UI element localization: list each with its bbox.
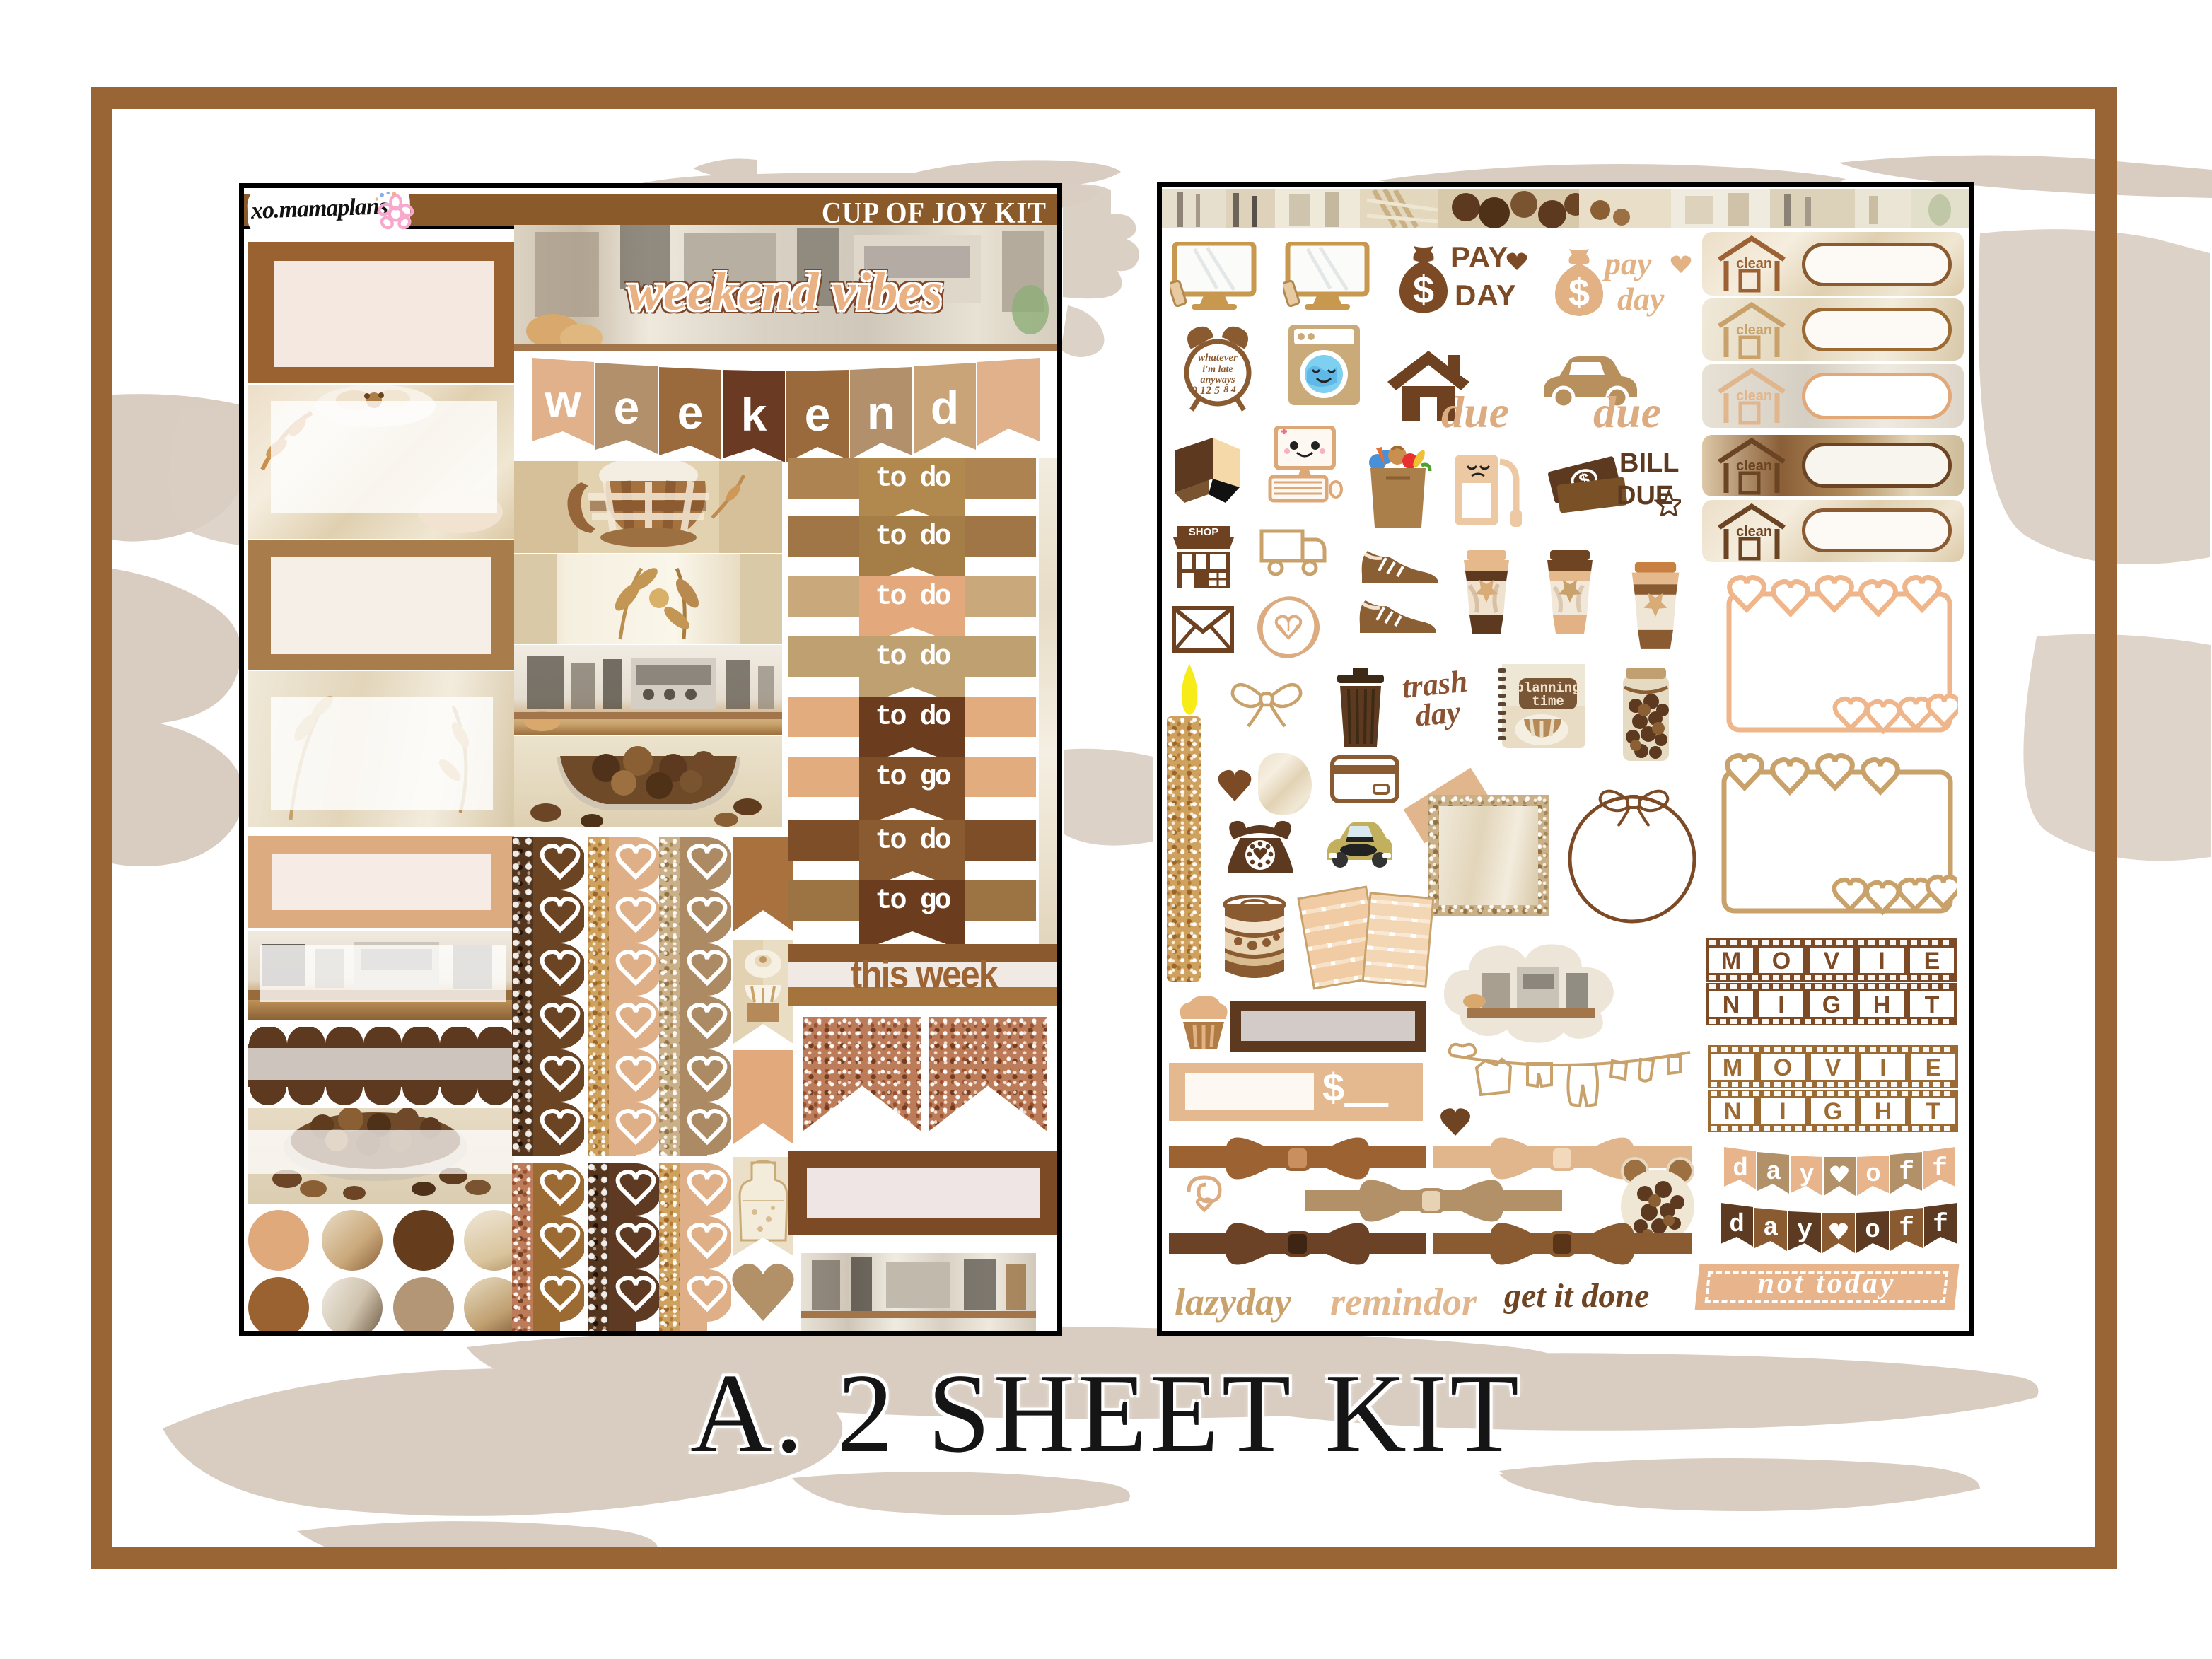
svg-text:9 12 5: 9 12 5 <box>1192 385 1220 397</box>
svg-text:T: T <box>1925 991 1940 1018</box>
svg-text:G: G <box>1824 1098 1842 1125</box>
svg-text:a: a <box>1766 1158 1781 1187</box>
svg-text:due: due <box>1441 387 1509 431</box>
svg-text:H: H <box>1873 991 1891 1018</box>
svg-text:i'm late: i'm late <box>1202 364 1233 375</box>
svg-text:o: o <box>1865 1160 1881 1189</box>
svg-text:N: N <box>1724 1098 1742 1125</box>
svg-text:M: M <box>1721 948 1741 974</box>
svg-text:clean: clean <box>1736 458 1772 474</box>
svg-text:d: d <box>931 381 959 433</box>
svg-text:T: T <box>1926 1098 1941 1125</box>
svg-text:N: N <box>1723 991 1740 1018</box>
svg-text:clean: clean <box>1736 256 1772 272</box>
svg-text:a: a <box>1763 1213 1779 1242</box>
svg-text:V: V <box>1824 948 1840 974</box>
svg-text:M: M <box>1723 1054 1742 1081</box>
svg-text:O: O <box>1772 948 1791 974</box>
svg-text:H: H <box>1875 1098 1892 1125</box>
svg-text:o: o <box>1865 1216 1880 1245</box>
svg-text:G: G <box>1822 991 1841 1018</box>
svg-text:I: I <box>1880 1054 1886 1081</box>
svg-text:SHOP: SHOP <box>1189 526 1219 538</box>
svg-text:d: d <box>1733 1154 1748 1183</box>
svg-text:whatever: whatever <box>1198 352 1238 363</box>
svg-text:y: y <box>1797 1216 1812 1245</box>
svg-text:8 4: 8 4 <box>1223 385 1236 395</box>
svg-text:clean: clean <box>1736 524 1772 540</box>
svg-text:PAY: PAY <box>1450 240 1508 274</box>
svg-text:O: O <box>1774 1054 1792 1081</box>
svg-text:f: f <box>1932 1154 1948 1183</box>
svg-text:w: w <box>544 375 581 427</box>
svg-text:clean: clean <box>1736 322 1772 338</box>
svg-text:anyways: anyways <box>1201 375 1236 385</box>
svg-text:I: I <box>1779 1098 1786 1125</box>
svg-text:f: f <box>1899 1158 1914 1187</box>
svg-text:due: due <box>1593 387 1661 431</box>
svg-text:DAY: DAY <box>1455 279 1517 312</box>
svg-text:$: $ <box>1413 269 1434 311</box>
svg-text:e: e <box>677 386 704 438</box>
svg-text:k: k <box>741 388 767 441</box>
svg-text:I: I <box>1878 948 1885 974</box>
svg-text:V: V <box>1825 1054 1841 1081</box>
svg-text:E: E <box>1926 1054 1942 1081</box>
svg-text:E: E <box>1924 948 1940 974</box>
svg-text:f: f <box>1933 1210 1948 1239</box>
svg-text:d: d <box>1729 1210 1745 1239</box>
svg-text:n: n <box>867 386 895 438</box>
svg-text:y: y <box>1799 1160 1815 1189</box>
svg-text:clean: clean <box>1736 388 1772 404</box>
svg-text:time: time <box>1532 694 1564 709</box>
svg-text:$: $ <box>1568 272 1590 314</box>
svg-text:e: e <box>805 388 831 441</box>
svg-text:BILL: BILL <box>1619 448 1679 478</box>
svg-text:I: I <box>1778 991 1784 1018</box>
svg-text:day: day <box>1617 281 1665 317</box>
svg-text:e: e <box>614 381 640 433</box>
svg-text:DUE: DUE <box>1617 481 1673 511</box>
svg-text:pay: pay <box>1602 245 1652 281</box>
svg-text:f: f <box>1899 1213 1914 1242</box>
